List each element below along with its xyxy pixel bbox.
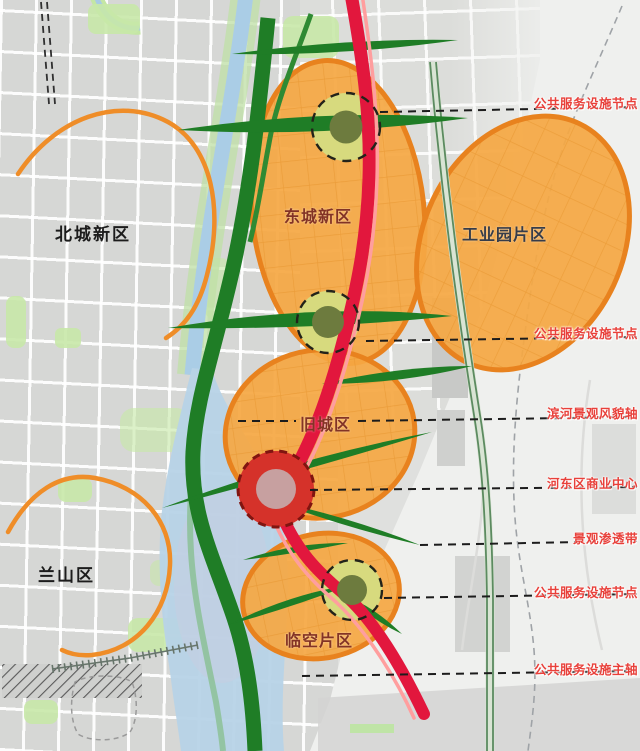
annotation-commercial-center: 河东区商业中心 <box>547 473 638 492</box>
zone-label-airport: 临空片区 <box>285 627 353 651</box>
zone-label-east-city: 东城新区 <box>284 203 352 227</box>
annotation-service-node-3: 公共服务设施节点 <box>534 582 638 601</box>
railway-north <box>41 2 55 104</box>
annotation-service-node-2: 公共服务设施节点 <box>534 323 638 342</box>
district-label-north-city: 北城新区 <box>55 220 131 245</box>
zone-label-old-city: 旧城区 <box>300 411 351 435</box>
annotation-main-axis: 公共服务设施主轴 <box>534 659 638 678</box>
district-label-lanshan: 兰山区 <box>38 561 95 586</box>
planning-map: 北城新区 兰山区 东城新区 工业园片区 旧城区 临空片区 公共服务设施节点 公共… <box>0 0 640 751</box>
annotation-landscape-belt: 景观渗透带 <box>573 528 638 547</box>
annotation-service-node-1: 公共服务设施节点 <box>534 93 638 112</box>
commercial-center-marker <box>238 451 314 527</box>
zone-label-industrial-park: 工业园片区 <box>462 221 547 245</box>
annotation-riverside-axis: 滨河景观风貌轴 <box>547 403 638 422</box>
